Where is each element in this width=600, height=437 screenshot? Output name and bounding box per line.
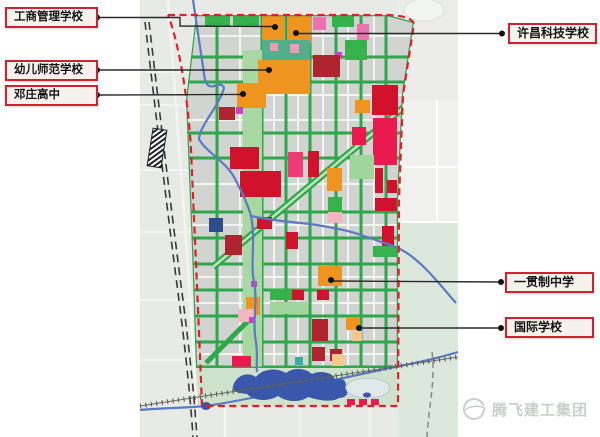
location-dot (498, 325, 504, 331)
land-use-block (290, 44, 299, 53)
leader-line (97, 95, 243, 96)
land-use-block (373, 246, 397, 257)
land-use-block (350, 155, 374, 179)
land-use-block (312, 347, 325, 361)
location-dot (293, 30, 299, 36)
location-dot (356, 325, 362, 331)
land-use-block (270, 289, 292, 300)
land-use-block (375, 168, 383, 193)
land-use-block (295, 357, 303, 365)
land-use-block (313, 17, 326, 30)
watermark: 腾飞建工集团 (461, 394, 596, 424)
interchange (404, 0, 444, 21)
land-use-block (292, 290, 304, 300)
label-international-school: 国际学校 (505, 317, 594, 338)
pond (363, 393, 371, 398)
location-dot (328, 277, 334, 283)
location-dot (266, 67, 272, 73)
land-use-block (387, 180, 397, 193)
label-integrated-middle-school: 一贯制中学 (505, 272, 594, 293)
pond (329, 380, 339, 388)
land-use-block (375, 198, 397, 211)
land-use-block (225, 235, 242, 255)
land-use-block (262, 40, 310, 60)
land-use-block (236, 107, 243, 114)
land-use-block (312, 319, 328, 341)
land-use-block (270, 43, 278, 51)
land-use-block (345, 40, 367, 60)
label-preschool-teachers-school: 幼儿师范学校 (5, 60, 98, 81)
land-use-block (288, 152, 303, 177)
land-use-block (352, 127, 366, 145)
land-use-block (270, 302, 308, 314)
city-grid (180, 10, 420, 371)
land-use-block (286, 232, 298, 249)
land-use-block (332, 354, 344, 366)
land-use-block (373, 118, 397, 165)
land-use-block (328, 212, 342, 223)
land-use-block (205, 16, 230, 27)
land-use-block (372, 85, 398, 115)
watermark-text: 腾飞建工集团 (492, 399, 588, 420)
land-use-block (332, 16, 354, 27)
land-use-block (219, 107, 235, 120)
location-dot (240, 91, 246, 97)
land-use-block (318, 266, 342, 286)
land-use-block (327, 168, 342, 191)
location-dot (499, 31, 505, 37)
label-xuchang-science-tech-school: 许昌科技学校 (508, 23, 597, 44)
land-use-block (230, 147, 259, 169)
land-use-block (233, 16, 259, 27)
land-use-block (240, 171, 281, 197)
land-use-block (287, 16, 311, 43)
label-dengzhuang-high-school: 邓庄高中 (5, 85, 98, 106)
location-dot (498, 279, 504, 285)
location-dot (272, 24, 278, 30)
land-use-block (308, 151, 319, 177)
land-use-block (317, 290, 329, 300)
land-use-block (357, 24, 369, 40)
watermark-logo-icon (461, 396, 487, 422)
label-business-management-school: 工商管理学校 (5, 7, 98, 28)
land-use-block (313, 55, 340, 77)
land-use-block (352, 331, 362, 341)
land-use-block (209, 218, 223, 232)
land-use-block (328, 197, 342, 211)
planning-map-page: 工商管理学校 幼儿师范学校 邓庄高中 许昌科技学校 一贯制中学 国际学校 腾飞建… (0, 0, 600, 437)
land-use-block (355, 100, 370, 113)
